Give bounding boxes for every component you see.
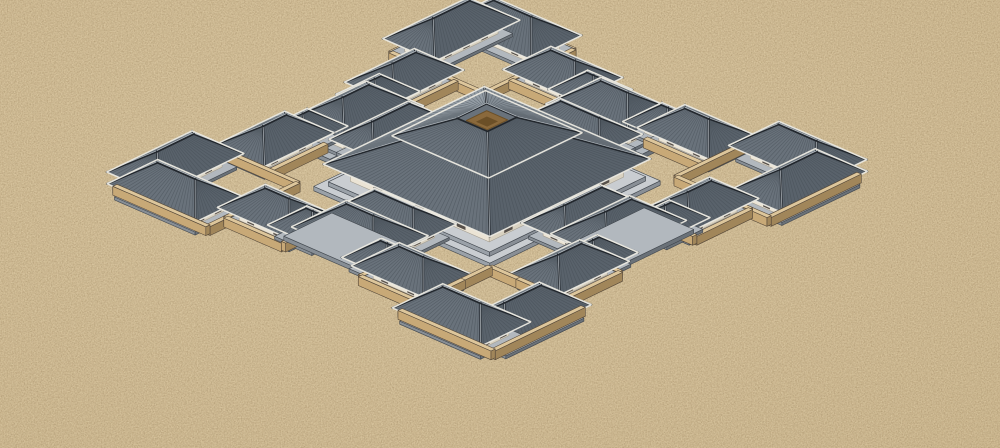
viewport bbox=[0, 0, 1000, 448]
3d-scene-canvas[interactable] bbox=[0, 0, 1000, 448]
